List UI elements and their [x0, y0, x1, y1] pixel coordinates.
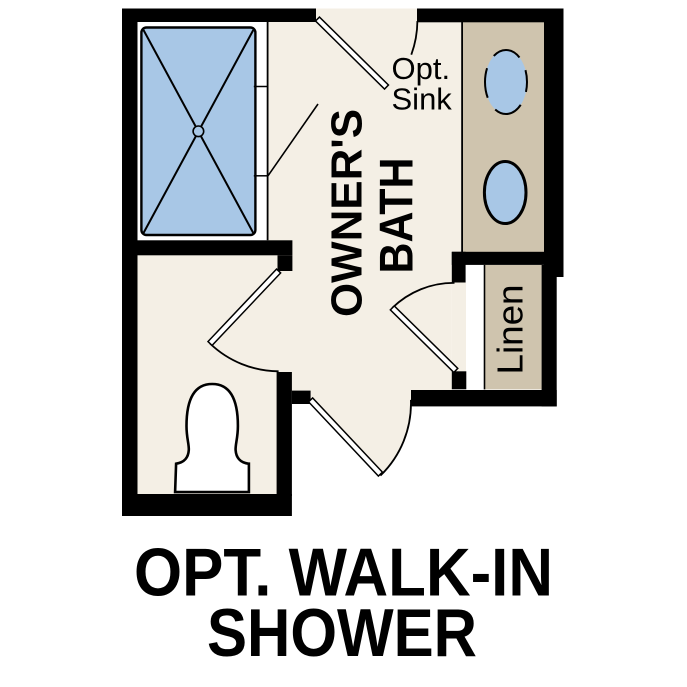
svg-text:BATH: BATH [370, 158, 423, 274]
svg-text:OWNER'S: OWNER'S [323, 109, 372, 317]
svg-text:Linen: Linen [490, 285, 531, 375]
svg-text:Sink: Sink [392, 82, 453, 117]
svg-text:SHOWER: SHOWER [207, 595, 477, 671]
